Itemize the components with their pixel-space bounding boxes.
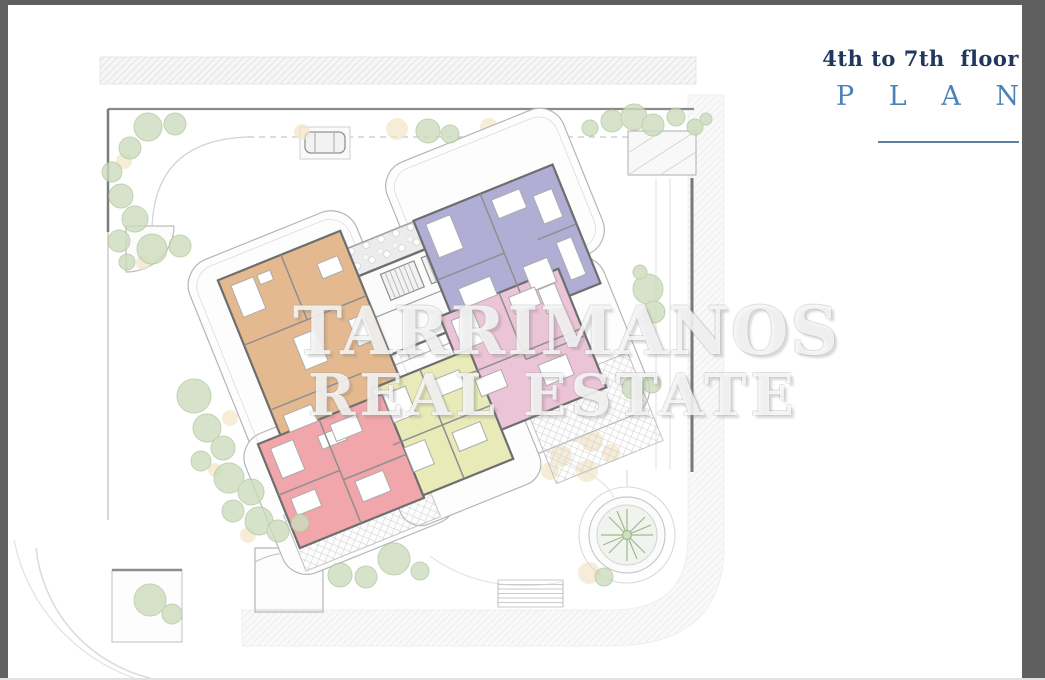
title-block: 4th to 7th floor P L A N (822, 46, 1019, 112)
title-underline (878, 141, 1019, 143)
road-north (100, 57, 696, 84)
frame-right-bar (1022, 0, 1045, 680)
ramp-structure (628, 131, 696, 175)
watermark-line1: TARRIMANOS (293, 292, 840, 370)
garden-steps (498, 580, 563, 607)
frame-top-bar (0, 0, 1045, 5)
planters (112, 226, 182, 642)
car-icon (305, 132, 345, 153)
watermark-line2: REAL ESTATE (308, 362, 798, 429)
frame-left-bar (0, 0, 8, 680)
floor-range-title: 4th to 7th floor (822, 46, 1019, 71)
plan-title: P L A N (822, 81, 1032, 112)
floor-plan-page: TARRIMANOS REAL ESTATE 4th to 7th floor … (0, 0, 1045, 680)
